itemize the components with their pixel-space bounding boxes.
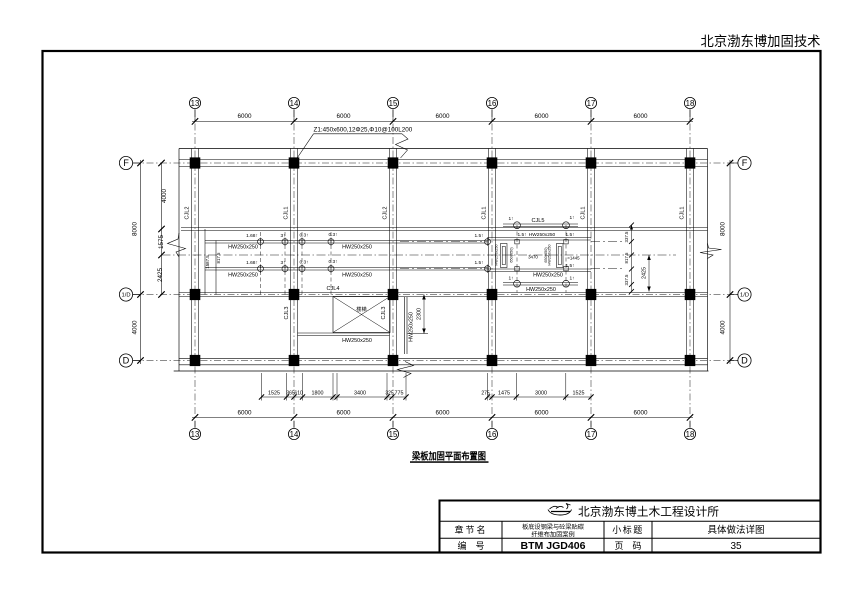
svg-text:325: 325 [385, 391, 394, 397]
svg-text:编 号: 编 号 [457, 540, 484, 551]
svg-text:≈1445: ≈1445 [567, 256, 580, 261]
svg-text:650(650): 650(650) [544, 247, 548, 263]
svg-text:HW250x250: HW250x250 [529, 232, 556, 238]
svg-text:0.3↑: 0.3↑ [328, 232, 337, 238]
svg-text:6000: 6000 [237, 410, 252, 417]
svg-text:1800: 1800 [312, 391, 324, 397]
svg-text:610: 610 [294, 391, 303, 397]
svg-text:2300: 2300 [417, 308, 423, 320]
svg-text:1525: 1525 [268, 391, 280, 397]
svg-text:CJL1: CJL1 [284, 206, 290, 219]
svg-text:F: F [123, 158, 129, 168]
svg-text:BTM JGD406: BTM JGD406 [521, 541, 586, 552]
svg-text:17: 17 [587, 99, 596, 108]
svg-text:8000: 8000 [132, 222, 139, 237]
svg-text:6000: 6000 [336, 410, 351, 417]
svg-text:HW250x250: HW250x250 [533, 273, 563, 279]
svg-text:章节名: 章节名 [454, 524, 487, 535]
svg-text:1↑: 1↑ [508, 216, 513, 222]
svg-text:北京渤东博土木工程设计所: 北京渤东博土木工程设计所 [578, 505, 720, 519]
svg-text:北京渤东博加固技术: 北京渤东博加固技术 [701, 33, 821, 49]
svg-text:16: 16 [488, 99, 497, 108]
svg-text:15: 15 [389, 430, 398, 439]
svg-text:650(650): 650(650) [510, 247, 514, 263]
svg-text:HW250x250: HW250x250 [526, 287, 556, 293]
svg-text:0.3↑: 0.3↑ [299, 259, 308, 265]
svg-text:1↑: 1↑ [508, 276, 513, 282]
svg-text:D: D [123, 356, 130, 366]
svg-text:楼梯: 楼梯 [356, 305, 366, 313]
svg-text:8000: 8000 [720, 222, 727, 237]
svg-text:1.5↑: 1.5↑ [565, 263, 574, 269]
svg-text:HW250x250: HW250x250 [228, 272, 258, 278]
svg-text:CJL2: CJL2 [185, 206, 191, 219]
svg-text:817.5: 817.5 [624, 252, 629, 264]
svg-text:1.5↑: 1.5↑ [474, 260, 483, 266]
svg-text:CJL2: CJL2 [383, 206, 389, 219]
svg-text:775: 775 [395, 391, 404, 397]
svg-text:0.3↑: 0.3↑ [299, 232, 308, 238]
svg-text:13: 13 [191, 99, 200, 108]
svg-text:13: 13 [191, 430, 200, 439]
svg-text:337.5: 337.5 [624, 274, 629, 286]
svg-text:4000: 4000 [161, 189, 168, 204]
svg-text:6000: 6000 [237, 113, 252, 120]
svg-text:1575: 1575 [158, 235, 165, 250]
svg-text:1↑: 1↑ [569, 215, 574, 221]
svg-text:HW250x250: HW250x250 [228, 245, 258, 251]
svg-text:1475: 1475 [498, 391, 510, 397]
svg-text:6000: 6000 [633, 410, 648, 417]
svg-text:1/D: 1/D [740, 293, 749, 299]
svg-text:6000: 6000 [633, 113, 648, 120]
svg-text:2425: 2425 [157, 268, 164, 283]
svg-text:3400: 3400 [354, 391, 366, 397]
svg-text:HW250x250: HW250x250 [409, 312, 415, 342]
svg-text:CJL5: CJL5 [531, 218, 544, 224]
svg-text:小标题: 小标题 [612, 524, 644, 535]
svg-text:HW250x250: HW250x250 [342, 272, 372, 278]
svg-text:CJL1: CJL1 [680, 206, 686, 219]
svg-text:35: 35 [730, 541, 742, 552]
svg-text:1587.5: 1587.5 [205, 255, 210, 269]
svg-text:1.5↑: 1.5↑ [474, 233, 483, 239]
svg-text:6000: 6000 [435, 113, 450, 120]
svg-text:1.5↑: 1.5↑ [517, 232, 526, 238]
svg-text:3000: 3000 [535, 391, 547, 397]
svg-text:页 码: 页 码 [614, 541, 641, 551]
svg-text:HW250x250: HW250x250 [342, 338, 372, 344]
svg-text:2425: 2425 [642, 267, 648, 279]
svg-text:D: D [741, 356, 748, 366]
svg-text:16: 16 [488, 430, 497, 439]
svg-text:F: F [742, 158, 748, 168]
svg-text:6000: 6000 [435, 410, 450, 417]
svg-text:4000: 4000 [132, 320, 139, 335]
svg-text:Z1:450x600,12Φ25,Φ10@100L200: Z1:450x600,12Φ25,Φ10@100L200 [314, 126, 413, 133]
svg-text:1↑: 1↑ [569, 276, 574, 282]
svg-text:1525: 1525 [573, 391, 585, 397]
svg-text:CJL1: CJL1 [482, 206, 488, 219]
svg-text:HW250x250: HW250x250 [495, 245, 499, 266]
svg-text:1/D: 1/D [121, 293, 130, 299]
svg-text:6000: 6000 [534, 113, 549, 120]
svg-text:具体做法详图: 具体做法详图 [707, 524, 764, 536]
svg-text:CJL4: CJL4 [326, 286, 339, 292]
svg-text:6000: 6000 [336, 113, 351, 120]
svg-text:1.68↑: 1.68↑ [246, 260, 258, 266]
svg-text:17: 17 [587, 430, 596, 439]
svg-text:HW250x250: HW250x250 [548, 245, 552, 266]
svg-text:18: 18 [686, 99, 695, 108]
svg-text:15: 15 [389, 99, 398, 108]
svg-text:817.5: 817.5 [216, 252, 221, 264]
svg-text:4000: 4000 [720, 320, 727, 335]
svg-text:14: 14 [290, 430, 299, 439]
svg-text:HW250x250: HW250x250 [342, 245, 372, 251]
svg-text:1.5↑: 1.5↑ [565, 232, 574, 238]
svg-text:纤维布加固案例: 纤维布加固案例 [531, 530, 574, 538]
svg-text:6000: 6000 [534, 410, 549, 417]
svg-text:CJL3: CJL3 [381, 306, 387, 319]
svg-text:18: 18 [686, 430, 695, 439]
svg-text:0.3↑: 0.3↑ [328, 259, 337, 265]
svg-text:板底设钢梁与砼梁贴碳: 板底设钢梁与砼梁贴碳 [522, 523, 585, 531]
svg-text:CJL1: CJL1 [581, 206, 587, 219]
svg-text:337.5: 337.5 [624, 231, 629, 243]
svg-text:CJL3: CJL3 [284, 306, 290, 319]
svg-text:14: 14 [290, 99, 299, 108]
svg-text:梁板加固平面布置图: 梁板加固平面布置图 [411, 450, 486, 463]
svg-text:3470: 3470 [528, 255, 538, 260]
svg-text:275: 275 [481, 391, 490, 397]
svg-text:1.68↑: 1.68↑ [246, 233, 258, 239]
